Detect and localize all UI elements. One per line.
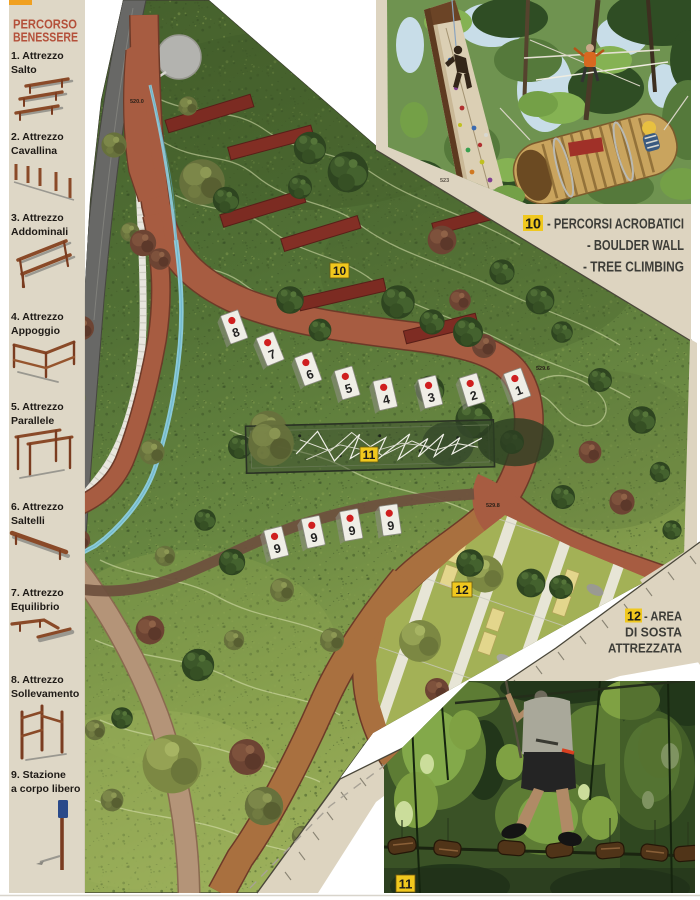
svg-text:529.8: 529.8 xyxy=(486,503,500,509)
svg-text:9. Stazione: 9. Stazione xyxy=(11,769,66,781)
svg-text:a corpo libero: a corpo libero xyxy=(11,783,80,795)
svg-text:1. Attrezzo: 1. Attrezzo xyxy=(11,50,64,62)
svg-text:4. Attrezzo: 4. Attrezzo xyxy=(11,311,64,323)
svg-text:12: 12 xyxy=(455,583,469,597)
svg-text:- PERCORSI ACROBATICI: - PERCORSI ACROBATICI xyxy=(547,217,684,233)
svg-text:7. Attrezzo: 7. Attrezzo xyxy=(11,587,64,599)
svg-text:11: 11 xyxy=(363,448,376,462)
svg-text:8. Attrezzo: 8. Attrezzo xyxy=(11,674,64,686)
svg-text:10: 10 xyxy=(525,217,541,233)
svg-text:Salto: Salto xyxy=(11,64,37,76)
svg-text:Equilibrio: Equilibrio xyxy=(11,601,59,613)
svg-text:BENESSERE: BENESSERE xyxy=(13,30,78,45)
svg-text:529.6: 529.6 xyxy=(536,366,550,372)
svg-text:Saltelli: Saltelli xyxy=(11,515,45,527)
svg-text:ATTREZZATA: ATTREZZATA xyxy=(608,641,683,656)
svg-text:Sollevamento: Sollevamento xyxy=(11,688,79,700)
svg-text:6. Attrezzo: 6. Attrezzo xyxy=(11,501,64,513)
svg-text:- BOULDER WALL: - BOULDER WALL xyxy=(587,238,684,254)
svg-text:Parallele: Parallele xyxy=(11,415,54,427)
svg-text:12: 12 xyxy=(627,609,641,624)
svg-text:11: 11 xyxy=(399,877,413,892)
svg-text:5. Attrezzo: 5. Attrezzo xyxy=(11,401,64,413)
svg-text:3. Attrezzo: 3. Attrezzo xyxy=(11,212,64,224)
svg-text:DI SOSTA: DI SOSTA xyxy=(625,625,683,640)
svg-text:Addominali: Addominali xyxy=(11,226,68,238)
svg-text:- TREE CLIMBING: - TREE CLIMBING xyxy=(583,260,684,276)
svg-text:2. Attrezzo: 2. Attrezzo xyxy=(11,131,64,143)
svg-text:- AREA: - AREA xyxy=(644,609,683,624)
svg-text:523: 523 xyxy=(440,178,449,184)
svg-text:10: 10 xyxy=(333,264,347,278)
svg-text:520.0: 520.0 xyxy=(130,99,144,105)
svg-text:Appoggio: Appoggio xyxy=(11,325,60,337)
svg-text:Cavallina: Cavallina xyxy=(11,145,57,157)
